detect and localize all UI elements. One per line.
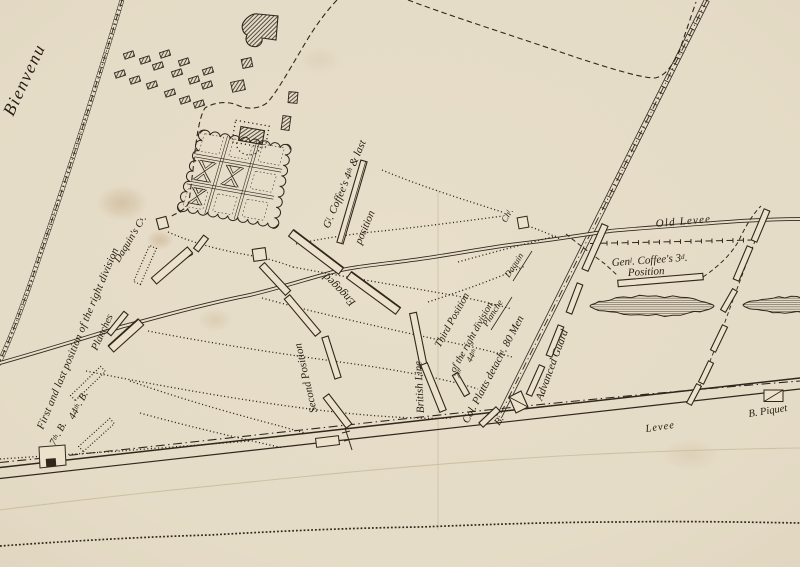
svg-text:Position: Position [627,265,666,279]
